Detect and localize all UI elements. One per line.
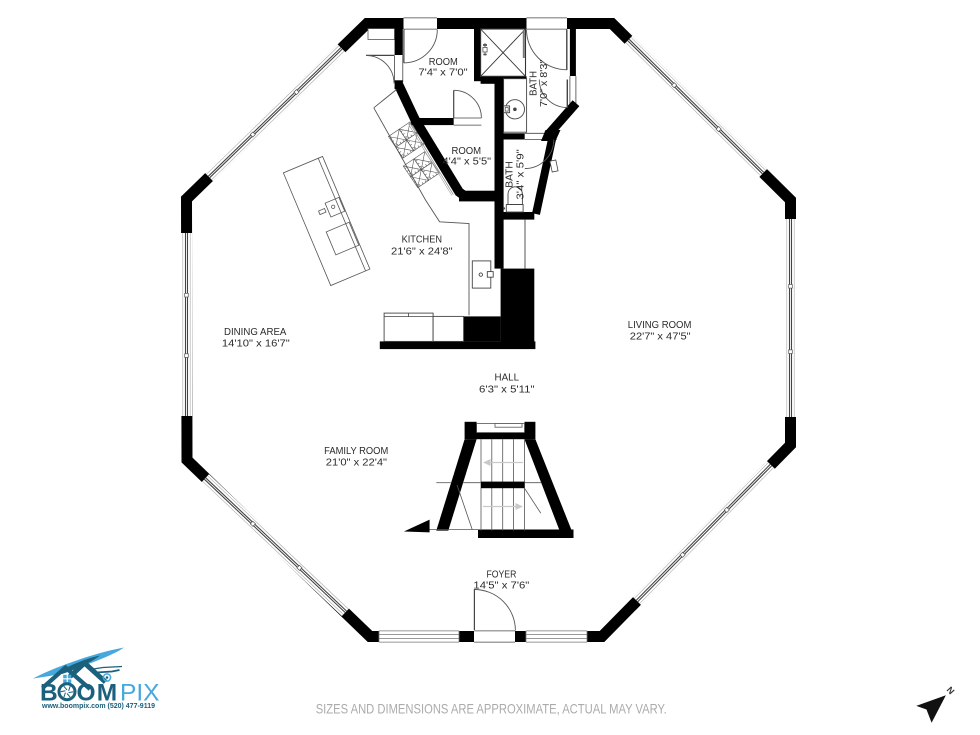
svg-text:7'4" x 7'0": 7'4" x 7'0" bbox=[418, 68, 468, 79]
svg-text:www.boompix.com (520) 477-9119: www.boompix.com (520) 477-9119 bbox=[41, 701, 155, 710]
svg-text:22'7" x 47'5": 22'7" x 47'5" bbox=[630, 331, 691, 342]
svg-text:14'5" x 7'6": 14'5" x 7'6" bbox=[473, 581, 529, 592]
svg-text:HALL: HALL bbox=[495, 372, 520, 383]
svg-text:3'4" x 5'9": 3'4" x 5'9" bbox=[516, 149, 527, 200]
svg-text:7'0" x 8'3": 7'0" x 8'3" bbox=[539, 59, 550, 107]
svg-text:SIZES AND DIMENSIONS ARE APPRO: SIZES AND DIMENSIONS ARE APPROXIMATE, AC… bbox=[316, 701, 667, 716]
svg-text:6'3" x 5'11": 6'3" x 5'11" bbox=[479, 385, 535, 396]
svg-text:LIVING ROOM: LIVING ROOM bbox=[628, 320, 692, 331]
svg-text:FOYER: FOYER bbox=[486, 570, 516, 581]
svg-text:KITCHEN: KITCHEN bbox=[402, 234, 442, 245]
svg-text:BATH: BATH bbox=[529, 71, 540, 96]
svg-text:DINING AREA: DINING AREA bbox=[224, 327, 287, 338]
svg-text:21'6" x 24'8": 21'6" x 24'8" bbox=[391, 246, 453, 257]
svg-text:14'10" x 16'7": 14'10" x 16'7" bbox=[222, 339, 290, 350]
svg-text:FAMILY ROOM: FAMILY ROOM bbox=[324, 446, 388, 457]
svg-text:21'0" x 22'4": 21'0" x 22'4" bbox=[326, 457, 388, 468]
svg-text:ROOM: ROOM bbox=[429, 57, 458, 68]
svg-text:4'4" x 5'5": 4'4" x 5'5" bbox=[443, 157, 492, 168]
svg-text:ROOM: ROOM bbox=[451, 146, 481, 157]
svg-text:BATH: BATH bbox=[505, 161, 516, 188]
